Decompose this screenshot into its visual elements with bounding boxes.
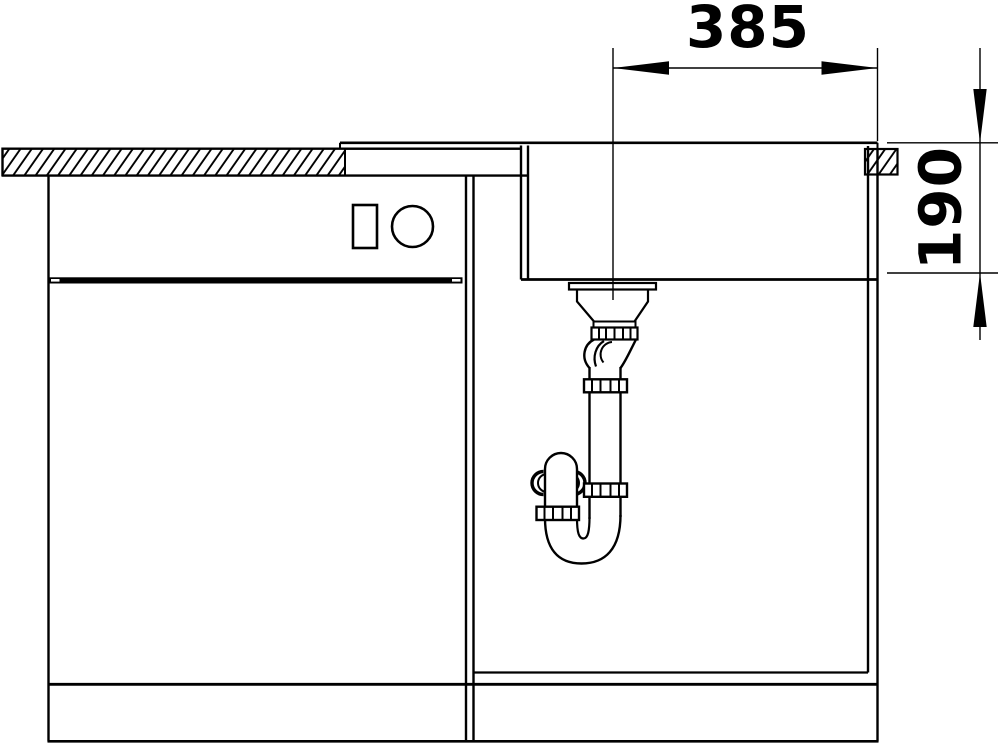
siphon-trap bbox=[532, 340, 636, 564]
control-knob bbox=[392, 206, 433, 247]
door-gap-notch-left bbox=[51, 279, 60, 282]
dim-arrow-up-icon bbox=[973, 273, 986, 327]
countertop-hatch-right bbox=[865, 149, 898, 175]
drain-strainer bbox=[569, 48, 656, 340]
sink-rim bbox=[340, 143, 878, 150]
appliance-control-panel bbox=[353, 205, 433, 248]
cabinet-divider bbox=[466, 176, 474, 742]
countertop-section-right bbox=[865, 149, 898, 175]
door-gap-notch-right bbox=[452, 279, 461, 282]
technical-drawing-page: 385 190 bbox=[0, 0, 1000, 744]
strainer-nut bbox=[592, 328, 638, 340]
dimension-bowl-depth: 190 bbox=[887, 48, 998, 340]
dim-arrow-left-icon bbox=[613, 61, 669, 74]
base-cabinet-right bbox=[474, 146, 878, 742]
dim-arrow-right-icon bbox=[822, 61, 878, 74]
technical-drawing-svg: 385 190 bbox=[0, 0, 1000, 744]
base-cabinet-left bbox=[49, 176, 463, 742]
countertop-hatch-left bbox=[3, 149, 344, 175]
control-button bbox=[353, 205, 377, 248]
sink-bowl bbox=[521, 146, 878, 280]
trap-u-bend bbox=[545, 515, 621, 564]
dim-label-drain-offset: 385 bbox=[686, 0, 810, 61]
door-gap-bar bbox=[49, 277, 463, 283]
countertop-section-left bbox=[2, 148, 528, 177]
dim-arrow-down-icon bbox=[973, 89, 986, 143]
trap-nut-upper bbox=[584, 379, 627, 392]
trap-nut-middle bbox=[584, 484, 627, 497]
dimension-drain-offset: 385 bbox=[613, 0, 878, 141]
trap-elbow bbox=[584, 340, 636, 369]
trap-nut-lower bbox=[537, 507, 580, 520]
dim-label-bowl-depth: 190 bbox=[906, 146, 974, 270]
plinth bbox=[48, 684, 879, 741]
